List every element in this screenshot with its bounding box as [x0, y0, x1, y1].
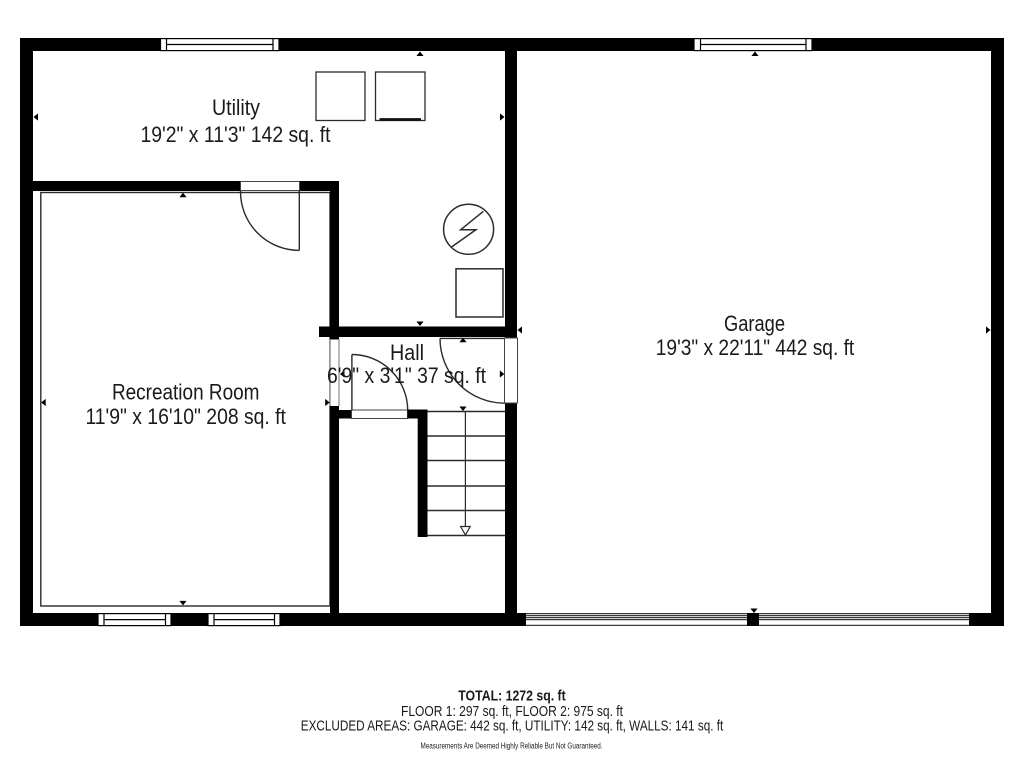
svg-text:Measurements Are Deemed Highly: Measurements Are Deemed Highly Reliable …: [421, 742, 603, 751]
svg-text:TOTAL: 1272 sq. ft: TOTAL: 1272 sq. ft: [458, 688, 566, 705]
svg-text:Recreation Room: Recreation Room: [112, 380, 260, 405]
svg-text:6'9" x 3'1" 37 sq. ft: 6'9" x 3'1" 37 sq. ft: [327, 363, 486, 388]
svg-text:Garage: Garage: [724, 311, 785, 336]
svg-text:Utility: Utility: [212, 95, 260, 120]
svg-text:19'3" x 22'11" 442 sq. ft: 19'3" x 22'11" 442 sq. ft: [656, 335, 855, 360]
svg-text:Hall: Hall: [390, 340, 424, 365]
svg-text:19'2" x 11'3" 142 sq. ft: 19'2" x 11'3" 142 sq. ft: [141, 122, 331, 147]
svg-text:11'9" x 16'10" 208 sq. ft: 11'9" x 16'10" 208 sq. ft: [85, 404, 286, 429]
svg-text:EXCLUDED AREAS: GARAGE: 442 sq: EXCLUDED AREAS: GARAGE: 442 sq. ft, UTIL…: [301, 718, 724, 735]
